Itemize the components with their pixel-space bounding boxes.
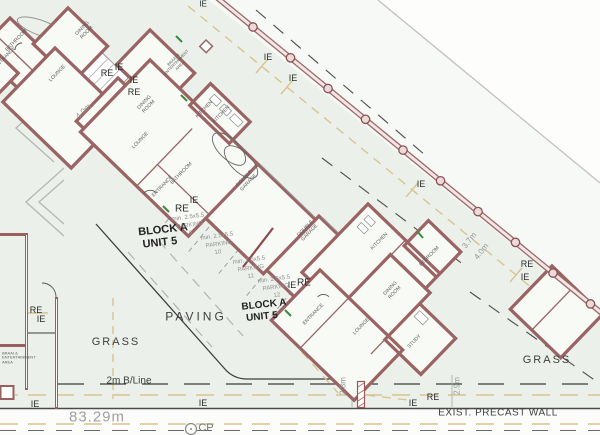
dim-4-0m: 4.0m xyxy=(74,103,93,122)
room-label-braai-entertainment: BRAAI & ENTERTAINMENT AREA xyxy=(160,46,193,80)
dim-83-29m: 83.29m xyxy=(69,410,125,427)
marker-ie: IE xyxy=(199,1,207,10)
marker-ie: IE xyxy=(521,272,530,282)
room-label-entrance: ENTRANCE xyxy=(151,175,174,199)
parking-number: 9 xyxy=(189,230,193,237)
label-exist-precast-wall: EXIST. PRECAST WALL xyxy=(438,407,558,418)
label-grass: GRASS xyxy=(92,336,141,348)
marker-re: RE xyxy=(101,68,114,78)
site-plan-page: IEREIEIEREIEIEIEREIEREIEREIEREIEIEIEIERE… xyxy=(0,0,600,435)
room-label-lounge: LOUNGE xyxy=(132,131,151,150)
parking-number: 12 xyxy=(273,292,281,300)
room-label-study: STUDY xyxy=(407,334,423,350)
label-grass: GRASS xyxy=(523,354,572,366)
room-label-double-garage: DOUBLE GARAGE xyxy=(236,169,259,192)
marker-ie: IE xyxy=(115,62,124,72)
marker-ie: IE xyxy=(190,195,199,205)
label-unit-5: UNIT 5 xyxy=(142,235,178,251)
label-cp: CP xyxy=(198,422,213,434)
room-label-bathroom: BATHROOM xyxy=(170,162,194,186)
room-label-double-garage: DOUBLE GARAGE xyxy=(297,219,320,242)
room-label-entrance: ENTRANCE xyxy=(302,303,325,327)
marker-ie: IE xyxy=(31,399,40,409)
parking-number: 10 xyxy=(214,249,222,257)
marker-re: RE xyxy=(128,87,141,97)
marker-ie: IE xyxy=(37,314,46,324)
dim-2m-building-line: 2m B/Line xyxy=(106,375,151,386)
marker-re: RE xyxy=(297,277,311,288)
room-label-kitchen: KITCHEN xyxy=(370,232,389,252)
marker-ie: IE xyxy=(417,179,426,189)
room-label-lounge: LOUNGE xyxy=(353,317,372,336)
marker-re: RE xyxy=(427,392,440,402)
marker-ie: IE xyxy=(130,75,139,85)
room-label-dining-room: DINING ROOM xyxy=(137,95,157,115)
marker-ie: IE xyxy=(264,52,273,62)
room-label-bedroom: BEDROOM xyxy=(419,246,441,268)
room-label-kitchen: KITCHEN xyxy=(195,100,214,120)
dim-3-7m: 3.7m xyxy=(461,231,479,251)
marker-ie: IE xyxy=(289,73,298,83)
room-label-entrance: ENTRANCE xyxy=(0,46,18,70)
dim-2-8m: 2.8m xyxy=(340,377,349,395)
room-label-lounge: LOUNGE xyxy=(49,64,68,83)
room-label-dining-room: DINING ROOM xyxy=(383,281,403,301)
room-label-dining-room: DINING ROOM xyxy=(75,21,95,41)
parking-number: 11 xyxy=(247,273,254,281)
dim-2-9m: 2.9m xyxy=(454,377,463,395)
dim-4-0m: 4.0m xyxy=(473,242,491,262)
room-label-kitchen: KITCHEN xyxy=(212,105,231,125)
label-paving: PAVING xyxy=(165,310,227,323)
marker-ie: IE xyxy=(409,398,418,408)
label-unit-5: UNIT 5 xyxy=(246,310,279,324)
marker-ie: IE xyxy=(199,398,208,408)
room-label-braai-entertainment: BRAAI & ENTERTAINMENT AREA xyxy=(2,351,36,364)
labels-layer: IEREIEIEREIEIEIEREIEREIEREIEREIEIEIEIERE… xyxy=(0,0,600,435)
marker-re: RE xyxy=(175,203,189,214)
marker-re: RE xyxy=(521,259,534,269)
